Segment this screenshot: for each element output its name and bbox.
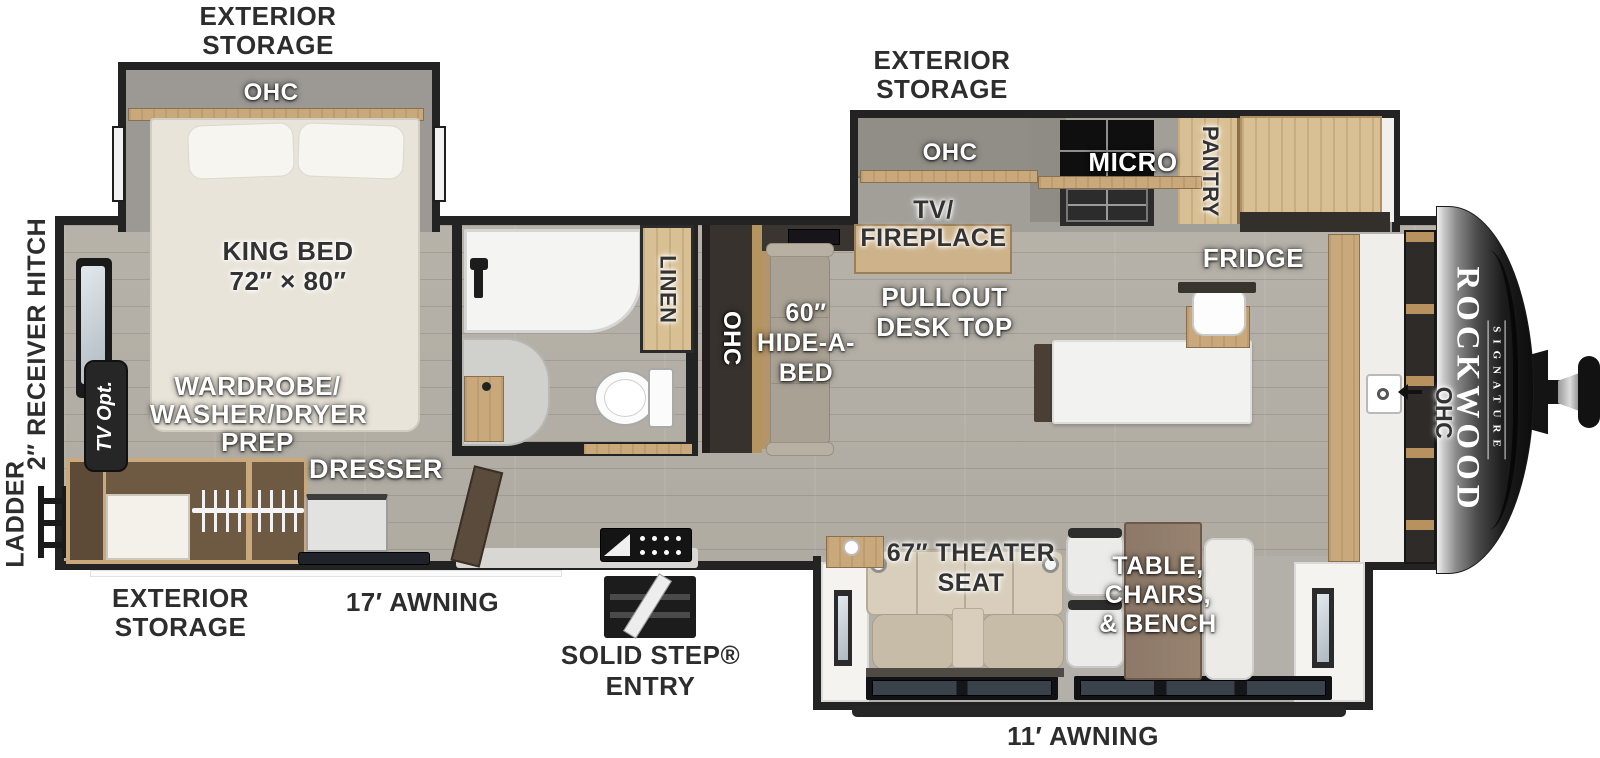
slide-window-pane <box>838 596 848 660</box>
pantry-label-wrap: PANTRY <box>1178 120 1240 222</box>
theater-seat-console <box>952 608 984 668</box>
island-end-cap <box>1034 344 1054 422</box>
step-dot <box>652 536 657 541</box>
front-counter-wood <box>1328 234 1360 562</box>
kitchen-shelf <box>860 170 1038 183</box>
receiver-hitch-label: 2″ RECEIVER HITCH <box>23 218 51 470</box>
step-dot <box>640 536 645 541</box>
floor-mat <box>298 552 430 565</box>
kitchen-slide-end-wall <box>1382 118 1394 222</box>
sofa-armrest <box>766 442 834 456</box>
hide-a-bed-label: 60″ HIDE-A- BED <box>742 298 870 388</box>
linen-label: LINEN <box>655 255 680 324</box>
toilet-tank <box>648 368 674 428</box>
dresser <box>306 494 388 552</box>
awning-11-label: 11′ AWNING <box>988 722 1178 751</box>
washer-prep-box <box>106 494 190 560</box>
ladder-label-wrap: LADDER <box>0 452 36 576</box>
sofa-armrest <box>766 243 834 257</box>
front-ohc-label-wrap: OHC <box>1428 366 1458 460</box>
exterior-storage-rear-label: EXTERIOR STORAGE <box>88 584 273 642</box>
toilet-seat <box>604 379 646 417</box>
slide-window-pane <box>1317 594 1329 662</box>
slide-floor-window-pane <box>872 680 1052 696</box>
fridge-label: FRIDGE <box>1186 244 1321 273</box>
theater-seat-cushion <box>982 614 1064 670</box>
bedroom-slide-window-left <box>112 126 125 202</box>
hangers-icon <box>258 490 298 532</box>
range-grate <box>1066 188 1148 222</box>
island-sink-shelf <box>1178 282 1256 293</box>
front-sink-faucet <box>1377 388 1389 400</box>
bedroom-slide-window-right <box>433 126 446 202</box>
tv-opt-badge: TV Opt. <box>84 360 128 472</box>
theater-seat-cushion <box>872 614 954 670</box>
towel-roll-icon <box>843 539 860 556</box>
theater-seat-label: 67″ THEATER SEAT <box>876 538 1066 598</box>
awning-11-bar <box>852 706 1346 717</box>
ladder-icon <box>38 542 68 548</box>
step-dot <box>676 550 681 555</box>
hangers-icon <box>202 490 242 532</box>
exterior-storage-kitchen-label: EXTERIOR STORAGE <box>832 46 1052 104</box>
kitchen-ohc-label: OHC <box>900 140 1000 167</box>
vanity-faucet <box>482 382 491 391</box>
awning-17-strip <box>90 570 562 577</box>
wardrobe-left-shelves <box>70 462 106 560</box>
exterior-storage-bedroom-label: EXTERIOR STORAGE <box>158 2 378 60</box>
dresser-label: DRESSER <box>306 454 446 484</box>
front-ohc-arrow-icon <box>1398 384 1408 400</box>
kitchen-island <box>1052 340 1252 424</box>
dinette-chair-back <box>1068 528 1122 538</box>
theater-seat-base <box>866 668 1064 677</box>
entry-step-platform <box>600 528 692 562</box>
brand-series: SIGNATURE <box>1488 320 1506 460</box>
hall-ohc-label: OHC <box>717 311 744 366</box>
ladder-icon <box>38 498 68 504</box>
pillow <box>187 122 295 180</box>
floorplan-diagram: OHC EXTERIOR STORAGE KING BED 72″ × 80″ … <box>0 0 1600 758</box>
linen-label-wrap: LINEN <box>640 229 694 349</box>
table-chairs-label: TABLE, CHAIRS, & BENCH <box>1078 552 1238 639</box>
step-dot <box>640 550 645 555</box>
ladder-icon <box>38 520 68 526</box>
micro-label: MICRO <box>1078 148 1188 177</box>
awning-17-label: 17′ AWNING <box>330 588 515 617</box>
front-ohc-label: OHC <box>1430 387 1456 440</box>
step-dot <box>676 536 681 541</box>
pillow <box>297 122 405 180</box>
ladder-label: LADDER <box>2 460 30 567</box>
step-dot <box>664 536 669 541</box>
slide-floor-window-pane <box>1080 680 1326 696</box>
pullout-desk-label: PULLOUT DESK TOP <box>852 282 1037 342</box>
bedroom-ohc-label: OHC <box>196 80 346 107</box>
solid-step-label: SOLID STEP® ENTRY <box>548 640 753 702</box>
tv-opt-label: TV Opt. <box>95 380 118 451</box>
fridge-front-band <box>1240 212 1390 232</box>
king-bed-label: KING BED 72″ × 80″ <box>200 236 376 296</box>
hitch-jack-knob <box>1578 356 1600 428</box>
step-dot <box>652 550 657 555</box>
bathroom-wall-left <box>452 225 462 451</box>
step-dot <box>664 550 669 555</box>
wardrobe-label: WARDROBE/ WASHER/DRYER PREP <box>150 372 365 456</box>
shower-head-icon <box>474 266 483 298</box>
island-sink-bowl <box>1192 288 1246 336</box>
fridge-cabinet <box>1240 116 1382 220</box>
bathroom-threshold <box>584 444 692 454</box>
shower <box>464 229 642 333</box>
pantry-label: PANTRY <box>1197 126 1222 217</box>
tv-fireplace-label: TV/ FIREPLACE <box>846 196 1021 252</box>
